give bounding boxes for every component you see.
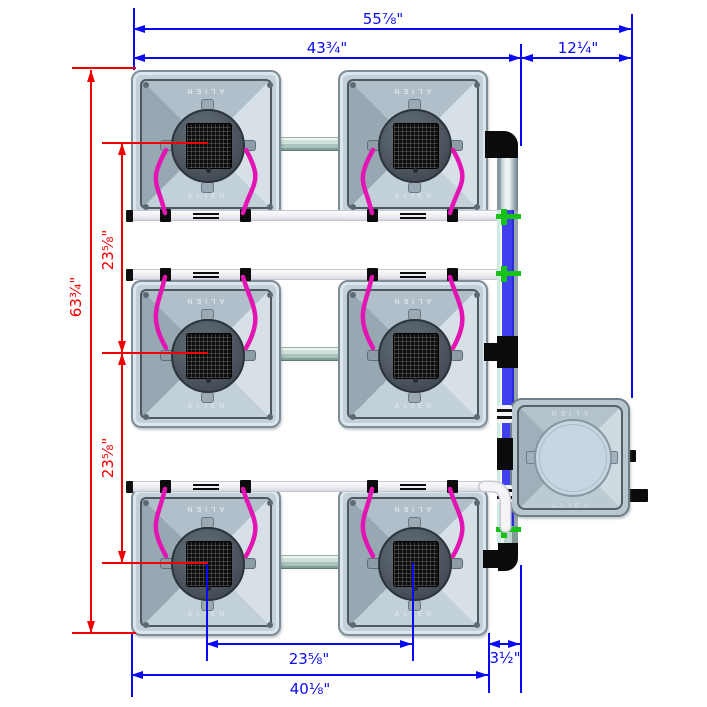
- net-pot-circle: [171, 109, 245, 183]
- bucket-3: ALIENALIEN: [131, 280, 281, 428]
- dimension-label: 40⅛": [290, 680, 331, 698]
- extension-line: [133, 8, 135, 70]
- hose-fitting: [367, 209, 378, 222]
- lid-tab-bottom: [408, 182, 421, 193]
- pipe-end-cap: [126, 210, 133, 222]
- lid-tab-bottom: [201, 392, 214, 403]
- reservoir-brand-top: ALIEN: [512, 408, 628, 416]
- pipe-union-mark: [193, 484, 219, 486]
- lid-tab-bottom: [408, 600, 421, 611]
- lid-screw: [413, 168, 418, 173]
- dimension-label: 63¾": [67, 277, 85, 318]
- dimension-label: 23⅝": [99, 230, 117, 271]
- dimension-line: [131, 674, 488, 676]
- lid-screw: [206, 378, 211, 383]
- green-tee-fitting: [496, 522, 521, 538]
- reservoir-brand-bottom: ALIEN: [512, 503, 628, 511]
- return-pipe-3: [127, 481, 486, 492]
- pipe-union-mark: [400, 213, 426, 215]
- elbow-top: [485, 131, 518, 158]
- net-pot-circle: [378, 527, 452, 601]
- hose-fitting: [240, 268, 251, 281]
- net-pot-mesh: [186, 541, 232, 587]
- dimension-label: 43¾": [307, 39, 348, 57]
- bucket-4: ALIENALIEN: [338, 280, 488, 428]
- bucket-brand-bottom: ALIEN: [133, 403, 279, 411]
- hose-fitting: [367, 268, 378, 281]
- dimension-label: 23⅝": [99, 438, 117, 479]
- bucket-brand-top: ALIEN: [133, 86, 279, 94]
- dimension-line: [133, 57, 521, 59]
- bucket-brand-top: ALIEN: [133, 296, 279, 304]
- dimension-line: [121, 143, 123, 353]
- bucket-brand-bottom: ALIEN: [340, 193, 486, 201]
- bucket-2: ALIENALIEN: [338, 70, 488, 218]
- arrow-right: [476, 671, 488, 679]
- arrow-right: [619, 54, 631, 62]
- pipe-union-mark: [193, 213, 219, 215]
- dimension-label: 55⅞": [363, 10, 404, 28]
- green-tee-horizontal: [496, 527, 521, 532]
- dimension-label: 23⅝": [289, 650, 330, 668]
- pipe-union-mark: [400, 484, 426, 486]
- reservoir-fitting: [627, 489, 648, 502]
- bucket-1: ALIENALIEN: [131, 70, 281, 218]
- net-pot-mesh: [186, 123, 232, 169]
- hose-fitting: [367, 480, 378, 493]
- net-pot-mesh: [393, 333, 439, 379]
- corner-screw: [267, 414, 273, 420]
- extension-line: [102, 352, 208, 354]
- lid-tab-bottom: [201, 182, 214, 193]
- extension-line: [72, 67, 136, 69]
- manifold-pipe-steel: [497, 151, 518, 212]
- bucket-brand-top: ALIEN: [340, 86, 486, 94]
- hose-fitting: [447, 209, 458, 222]
- pipe-union-mark: [400, 217, 426, 219]
- extension-line: [412, 563, 414, 661]
- bucket-brand-bottom: ALIEN: [133, 193, 279, 201]
- dimension-line: [206, 643, 412, 645]
- extension-line: [131, 634, 133, 697]
- pipe-union-mark: [400, 272, 426, 274]
- union-clamp: [497, 485, 512, 503]
- pipe-union-mark: [193, 217, 219, 219]
- arrow-right: [619, 25, 631, 33]
- lid-tab-bottom: [408, 392, 421, 403]
- hose-fitting: [240, 480, 251, 493]
- dimension-line: [488, 643, 520, 645]
- black-fitting-nub: [484, 343, 498, 361]
- hose-fitting: [160, 209, 171, 222]
- green-tee-horizontal: [496, 271, 521, 276]
- lid-screw: [206, 168, 211, 173]
- green-tee-fitting: [496, 266, 521, 282]
- net-pot-circle: [378, 109, 452, 183]
- bucket-brand-bottom: ALIEN: [340, 403, 486, 411]
- arrow-left: [521, 54, 533, 62]
- extension-line: [520, 44, 522, 146]
- corner-screw: [350, 414, 356, 420]
- pipe-union-mark: [193, 272, 219, 274]
- net-pot-circle: [378, 319, 452, 393]
- arrow-up: [118, 353, 126, 365]
- dimension-line: [133, 28, 631, 30]
- dimension-label: 12¼": [558, 39, 599, 57]
- pipe-union-mark: [193, 276, 219, 278]
- green-tee-horizontal: [496, 214, 521, 219]
- dimension-line: [121, 353, 123, 563]
- net-pot-circle: [171, 527, 245, 601]
- extension-line: [72, 632, 136, 634]
- dimension-label: 3½": [490, 649, 521, 667]
- arrow-up: [87, 70, 95, 82]
- pipe-union-mark: [193, 488, 219, 490]
- union-clamp: [497, 405, 512, 423]
- corner-screw: [267, 622, 273, 628]
- hose-fitting: [240, 209, 251, 222]
- net-pot-circle: [171, 319, 245, 393]
- corner-screw: [474, 622, 480, 628]
- reservoir-lid-circle: [534, 419, 612, 497]
- bucket-brand-top: ALIEN: [340, 504, 486, 512]
- extension-line: [631, 14, 633, 398]
- pipe-union-mark: [400, 488, 426, 490]
- elbow-arm: [483, 550, 505, 568]
- reservoir: ALIEN ALIEN: [510, 398, 630, 517]
- pipe-end-cap: [126, 481, 133, 493]
- dimension-line: [521, 57, 631, 59]
- net-pot-mesh: [393, 123, 439, 169]
- corner-screw: [350, 622, 356, 628]
- extension-line: [520, 565, 522, 693]
- dimension-line: [90, 70, 92, 633]
- hose-fitting: [160, 268, 171, 281]
- black-fitting: [497, 336, 518, 368]
- hose-fitting: [447, 268, 458, 281]
- extension-line: [102, 562, 208, 564]
- black-fitting: [497, 438, 513, 470]
- extension-line: [102, 142, 208, 144]
- green-tee-fitting: [496, 209, 521, 225]
- corner-screw: [143, 414, 149, 420]
- pipe-union-mark: [400, 276, 426, 278]
- net-pot-mesh: [186, 333, 232, 379]
- corner-screw: [143, 622, 149, 628]
- bucket-brand-top: ALIEN: [133, 504, 279, 512]
- net-pot-mesh: [393, 541, 439, 587]
- extension-line: [206, 563, 208, 661]
- pipe-end-cap: [126, 269, 133, 281]
- corner-screw: [474, 414, 480, 420]
- arrow-right: [508, 640, 520, 648]
- lid-screw: [413, 378, 418, 383]
- hose-fitting: [447, 480, 458, 493]
- arrow-right: [400, 640, 412, 648]
- arrow-up: [118, 143, 126, 155]
- bucket-brand-top: ALIEN: [340, 296, 486, 304]
- rdwc-system-diagram: ALIEN ALIEN ALIENALIENALIENALIENALIENALI…: [0, 0, 707, 707]
- hose-fitting: [160, 480, 171, 493]
